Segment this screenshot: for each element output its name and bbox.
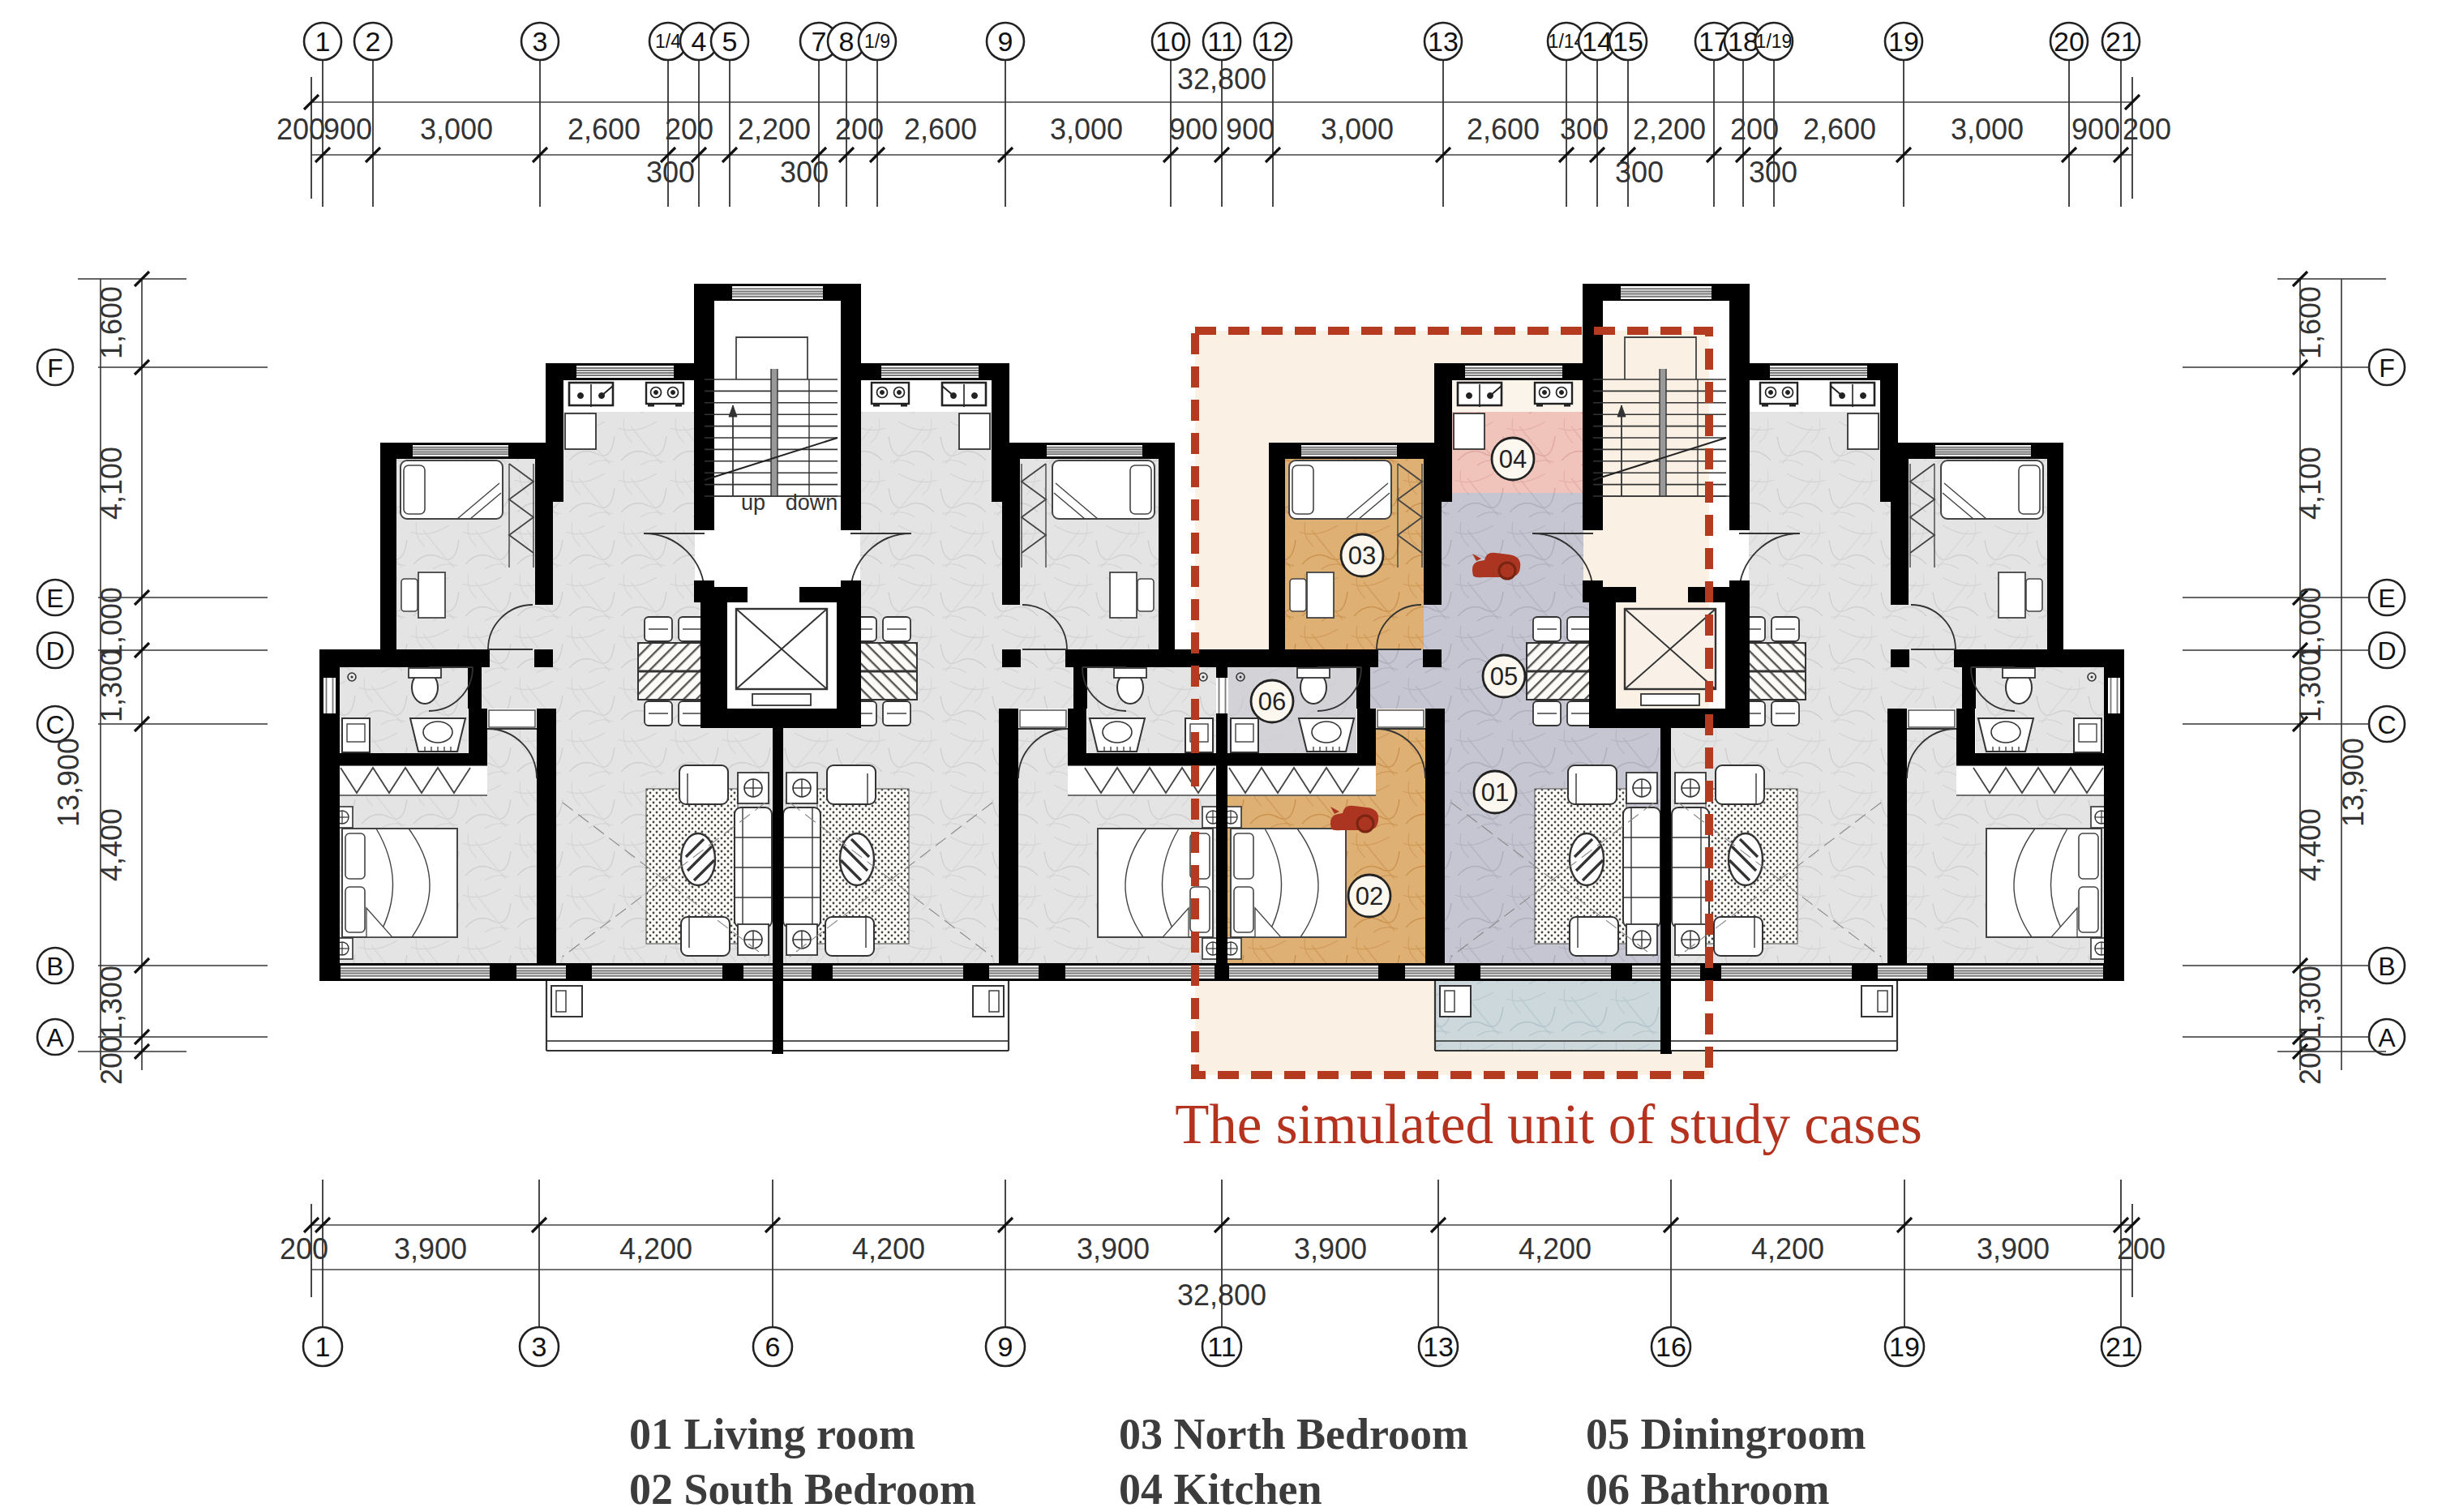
svg-text:A: A bbox=[46, 1023, 64, 1052]
svg-text:1: 1 bbox=[315, 1331, 331, 1362]
svg-text:05 Diningroom: 05 Diningroom bbox=[1586, 1410, 1866, 1458]
svg-text:4,200: 4,200 bbox=[1519, 1232, 1592, 1266]
svg-text:200: 200 bbox=[280, 1232, 328, 1266]
svg-text:D: D bbox=[2377, 636, 2396, 666]
svg-text:4,200: 4,200 bbox=[619, 1232, 692, 1266]
svg-text:32,800: 32,800 bbox=[1177, 1279, 1266, 1312]
svg-text:11: 11 bbox=[1207, 26, 1236, 57]
svg-text:300: 300 bbox=[1749, 156, 1797, 189]
svg-text:900: 900 bbox=[1169, 113, 1218, 146]
svg-text:200: 200 bbox=[95, 1036, 128, 1085]
svg-text:1/19: 1/19 bbox=[1756, 31, 1793, 52]
svg-text:C: C bbox=[2377, 710, 2396, 739]
svg-text:05: 05 bbox=[1490, 662, 1518, 691]
svg-text:04 Kitchen: 04 Kitchen bbox=[1119, 1465, 1322, 1512]
svg-text:B: B bbox=[2378, 952, 2395, 981]
svg-text:D: D bbox=[45, 636, 64, 666]
svg-text:4,100: 4,100 bbox=[95, 447, 128, 520]
svg-text:4,400: 4,400 bbox=[2294, 808, 2327, 881]
svg-text:13,900: 13,900 bbox=[52, 738, 85, 827]
svg-text:200: 200 bbox=[276, 113, 325, 146]
svg-text:300: 300 bbox=[780, 156, 829, 189]
svg-text:9: 9 bbox=[998, 26, 1013, 57]
svg-text:15: 15 bbox=[1613, 26, 1643, 57]
svg-text:06 Bathroom: 06 Bathroom bbox=[1586, 1465, 1830, 1512]
svg-text:03: 03 bbox=[1348, 542, 1376, 570]
svg-text:14: 14 bbox=[1582, 26, 1613, 57]
svg-text:3,000: 3,000 bbox=[1050, 113, 1123, 146]
svg-text:200: 200 bbox=[2123, 113, 2171, 146]
svg-text:200: 200 bbox=[2294, 1036, 2327, 1085]
svg-text:down: down bbox=[786, 490, 838, 515]
svg-text:F: F bbox=[47, 353, 63, 383]
svg-text:19: 19 bbox=[1888, 26, 1919, 57]
svg-text:2,600: 2,600 bbox=[568, 113, 640, 146]
svg-text:200: 200 bbox=[1730, 113, 1779, 146]
svg-text:4,100: 4,100 bbox=[2294, 447, 2327, 520]
svg-text:02: 02 bbox=[1356, 882, 1383, 910]
svg-text:300: 300 bbox=[646, 156, 695, 189]
svg-text:E: E bbox=[46, 584, 63, 613]
svg-text:The simulated unit of study ca: The simulated unit of study cases bbox=[1175, 1094, 1922, 1155]
svg-text:3,900: 3,900 bbox=[1294, 1232, 1367, 1266]
svg-text:C: C bbox=[45, 710, 64, 739]
svg-text:11: 11 bbox=[1207, 1331, 1236, 1362]
svg-text:20: 20 bbox=[2054, 26, 2084, 57]
svg-text:1: 1 bbox=[315, 26, 331, 57]
svg-text:900: 900 bbox=[1226, 113, 1275, 146]
svg-text:21: 21 bbox=[2106, 26, 2136, 57]
svg-text:21: 21 bbox=[2106, 1331, 2136, 1362]
svg-text:up: up bbox=[741, 490, 765, 515]
svg-text:4,400: 4,400 bbox=[95, 808, 128, 881]
svg-text:900: 900 bbox=[323, 113, 372, 146]
svg-text:E: E bbox=[2378, 584, 2395, 613]
svg-text:200: 200 bbox=[2117, 1232, 2166, 1266]
svg-text:2: 2 bbox=[366, 26, 381, 57]
svg-text:2,600: 2,600 bbox=[1803, 113, 1876, 146]
svg-text:300: 300 bbox=[1560, 113, 1609, 146]
svg-text:13,900: 13,900 bbox=[2337, 738, 2370, 827]
svg-text:13: 13 bbox=[1428, 26, 1459, 57]
svg-text:1,300: 1,300 bbox=[2294, 649, 2327, 722]
svg-text:10: 10 bbox=[1155, 26, 1186, 57]
svg-text:3: 3 bbox=[533, 26, 548, 57]
svg-text:4: 4 bbox=[692, 26, 707, 57]
svg-text:12: 12 bbox=[1257, 26, 1288, 57]
svg-text:02 South Bedroom: 02 South Bedroom bbox=[629, 1465, 976, 1512]
svg-text:2,600: 2,600 bbox=[1467, 113, 1540, 146]
svg-text:F: F bbox=[2379, 353, 2395, 383]
svg-text:3,000: 3,000 bbox=[1951, 113, 2024, 146]
svg-text:8: 8 bbox=[839, 26, 855, 57]
svg-text:6: 6 bbox=[765, 1331, 781, 1362]
svg-text:1,300: 1,300 bbox=[95, 649, 128, 722]
svg-text:1/4: 1/4 bbox=[655, 31, 681, 52]
svg-text:1,600: 1,600 bbox=[2294, 286, 2327, 359]
svg-text:03 North Bedroom: 03 North Bedroom bbox=[1119, 1410, 1468, 1458]
svg-text:04: 04 bbox=[1499, 445, 1527, 473]
svg-text:1,000: 1,000 bbox=[95, 587, 128, 660]
svg-text:900: 900 bbox=[2071, 113, 2120, 146]
svg-text:1,300: 1,300 bbox=[95, 966, 128, 1039]
svg-text:01 Living room: 01 Living room bbox=[629, 1410, 915, 1458]
svg-text:3,900: 3,900 bbox=[1077, 1232, 1150, 1266]
svg-text:300: 300 bbox=[1615, 156, 1664, 189]
svg-text:3,900: 3,900 bbox=[394, 1232, 467, 1266]
svg-text:200: 200 bbox=[665, 113, 713, 146]
svg-text:3,000: 3,000 bbox=[1321, 113, 1394, 146]
svg-text:06: 06 bbox=[1258, 687, 1286, 716]
svg-text:13: 13 bbox=[1423, 1331, 1454, 1362]
svg-text:19: 19 bbox=[1889, 1331, 1920, 1362]
svg-text:B: B bbox=[46, 952, 63, 981]
svg-text:4,200: 4,200 bbox=[1751, 1232, 1824, 1266]
svg-text:1,300: 1,300 bbox=[2294, 966, 2327, 1039]
svg-text:32,800: 32,800 bbox=[1177, 62, 1266, 96]
svg-text:1,600: 1,600 bbox=[95, 286, 128, 359]
svg-text:A: A bbox=[2378, 1023, 2396, 1052]
svg-text:9: 9 bbox=[998, 1331, 1013, 1362]
svg-text:2,600: 2,600 bbox=[904, 113, 977, 146]
svg-text:2,200: 2,200 bbox=[1633, 113, 1706, 146]
svg-text:5: 5 bbox=[722, 26, 738, 57]
svg-text:4,200: 4,200 bbox=[852, 1232, 925, 1266]
svg-text:01: 01 bbox=[1481, 778, 1509, 807]
svg-text:1/9: 1/9 bbox=[864, 31, 890, 52]
svg-text:3,000: 3,000 bbox=[420, 113, 493, 146]
svg-text:7: 7 bbox=[812, 26, 827, 57]
svg-text:18: 18 bbox=[1728, 26, 1759, 57]
svg-text:3,900: 3,900 bbox=[1977, 1232, 2050, 1266]
svg-text:1,000: 1,000 bbox=[2294, 587, 2327, 660]
svg-text:200: 200 bbox=[835, 113, 884, 146]
svg-text:3: 3 bbox=[532, 1331, 547, 1362]
svg-text:16: 16 bbox=[1656, 1331, 1686, 1362]
svg-text:2,200: 2,200 bbox=[738, 113, 811, 146]
